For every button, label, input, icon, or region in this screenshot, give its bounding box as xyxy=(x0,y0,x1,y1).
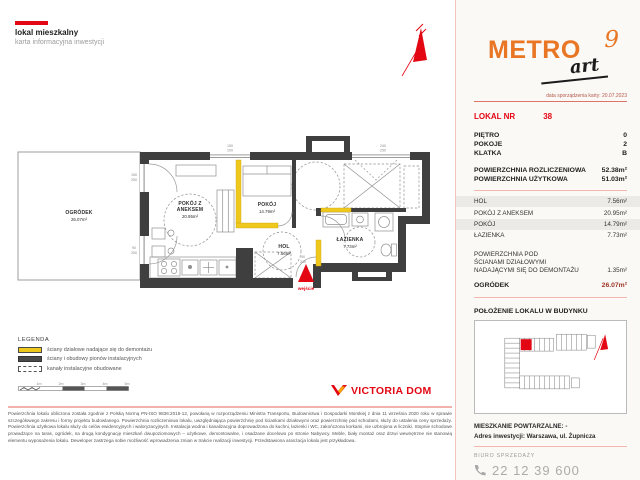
demountable-area-block: POWIERZCHNIA POD ŚCIANAMI DZIAŁOWYMI NAD… xyxy=(474,251,627,275)
info-value: 0 xyxy=(623,131,627,140)
area-value: 51.03m² xyxy=(602,175,627,184)
svg-text:100: 100 xyxy=(227,149,233,153)
demo-line-with-value: NADAJĄCYMI SIĘ DO DEMONTAŻU 1.35m² xyxy=(474,267,627,275)
card-main-area: lokal mieszkalny karta informacyjna inwe… xyxy=(0,0,455,480)
room-label: POKÓJ xyxy=(474,221,495,228)
card-date-note: data sporządzenia karty: 20.07.2023 xyxy=(474,93,627,102)
svg-text:90: 90 xyxy=(301,255,305,259)
info-value: B xyxy=(622,149,627,158)
scale-bar: 1m 2m 3m 4m 5m xyxy=(18,381,138,393)
svg-text:1m: 1m xyxy=(37,382,42,386)
svg-text:5m: 5m xyxy=(125,382,130,386)
unit-area-rows: POWIERZCHNIA ROZLICZENIOWA 52.38m² POWIE… xyxy=(474,166,627,184)
unit-number-row: LOKAL NR 38 xyxy=(474,112,627,121)
svg-text:90: 90 xyxy=(132,246,136,250)
dark-wall-swatch xyxy=(18,356,42,362)
garden-area-row: OGRÓDEK 26.07m² xyxy=(474,282,627,289)
table-row: POKÓJ 14.79m² xyxy=(456,219,640,230)
panel-divider xyxy=(474,190,627,191)
unit-number-value: 38 xyxy=(543,112,552,121)
room-value: 20.95m² xyxy=(604,210,627,217)
building-outline xyxy=(475,321,626,413)
svg-text:HOL: HOL xyxy=(278,244,289,250)
svg-text:250: 250 xyxy=(131,178,137,182)
table-row: ŁAZIENKA 7.73m² xyxy=(456,230,640,241)
panel-divider xyxy=(474,297,627,298)
svg-text:2m: 2m xyxy=(59,382,64,386)
svg-text:150: 150 xyxy=(131,173,137,177)
entrance-marker: wejście xyxy=(297,264,315,291)
diagram-north-arrow-icon xyxy=(594,334,608,360)
svg-text:240: 240 xyxy=(380,144,386,148)
victoria-dom-logo: VICTORIA DOM xyxy=(331,384,432,397)
svg-text:ŁAZIENKA: ŁAZIENKA xyxy=(337,237,364,243)
svg-text:14.79m²: 14.79m² xyxy=(259,209,276,214)
investment-address: Adres inwestycji: Warszawa, ul. Żupnicza xyxy=(474,433,627,440)
legend-item-label: kanały instalacyjne obudowane xyxy=(47,366,122,372)
svg-text:7.73m²: 7.73m² xyxy=(343,244,357,249)
info-row-rooms: POKOJE 2 xyxy=(474,140,627,149)
entrance-label: wejście xyxy=(297,286,315,291)
metro-art-logo: METRO 9 art xyxy=(474,36,627,88)
legend-item-label: ściany działowe nadające się do demontaż… xyxy=(47,347,152,353)
room-value: 14.79m² xyxy=(604,221,627,228)
svg-text:POKÓJ: POKÓJ xyxy=(258,200,277,208)
room-label: ŁAZIENKA xyxy=(474,232,504,239)
area-row-usable: POWIERZCHNIA UŻYTKOWA 51.03m² xyxy=(474,175,627,184)
room-label: HOL xyxy=(474,198,487,205)
legend: LEGENDA ściany działowe nadające się do … xyxy=(18,337,152,372)
info-panel: METRO 9 art data sporządzenia karty: 20.… xyxy=(455,0,640,480)
svg-text:250: 250 xyxy=(131,251,137,255)
room-value: 7.56m² xyxy=(607,198,627,205)
building-position-diagram xyxy=(474,320,627,414)
svg-text:7.56m²: 7.56m² xyxy=(277,251,291,256)
legend-item-shaft: ściany i obudowy pionów instalacyjnych xyxy=(18,356,152,362)
demo-line: NADAJĄCYMI SIĘ DO DEMONTAŻU xyxy=(474,267,579,275)
demo-line: ŚCIANAMI DZIAŁOWYMI xyxy=(474,259,627,267)
yellow-wall-swatch xyxy=(18,347,42,353)
dashed-duct-swatch xyxy=(18,366,42,372)
garden-label: OGRÓDEK xyxy=(474,282,509,289)
garden-value: 26.07m² xyxy=(602,282,627,289)
svg-text:4m: 4m xyxy=(103,382,108,386)
table-row: POKÓJ Z ANEKSEM 20.95m² xyxy=(456,207,640,218)
svg-text:20.95m²: 20.95m² xyxy=(182,214,199,219)
phone-row: 22 12 39 600 xyxy=(474,463,627,478)
info-label: KLATKA xyxy=(474,149,501,158)
svg-text:POKÓJ Z: POKÓJ Z xyxy=(178,199,201,207)
room-label: POKÓJ Z ANEKSEM xyxy=(474,210,533,217)
panel-divider xyxy=(474,446,627,447)
highlighted-unit xyxy=(521,339,532,350)
legend-item-demountable: ściany działowe nadające się do demontaż… xyxy=(18,347,152,353)
area-label: POWIERZCHNIA ROZLICZENIOWA xyxy=(474,166,586,175)
repeatable-unit-note: MIESZKANIE POWTARZALNE: - xyxy=(474,423,627,430)
footer-divider xyxy=(8,406,452,408)
area-row-billing: POWIERZCHNIA ROZLICZENIOWA 52.38m² xyxy=(474,166,627,175)
garden-area: OGRÓDEK 26.07m² xyxy=(18,152,140,280)
furniture-layer xyxy=(150,162,419,278)
unit-number-label: LOKAL NR xyxy=(474,112,515,121)
svg-text:210: 210 xyxy=(300,260,306,264)
demo-line: POWIERZCHNIA POD xyxy=(474,251,627,259)
metro-art-nine: 9 xyxy=(604,27,619,53)
legend-title: LEGENDA xyxy=(18,337,152,343)
room-area-table: HOL 7.56m² POKÓJ Z ANEKSEM 20.95m² POKÓJ… xyxy=(456,196,640,242)
svg-text:250: 250 xyxy=(380,149,386,153)
position-title: POŁOŻENIE LOKALU W BUDYNKU xyxy=(474,308,627,315)
garden-label: OGRÓDEK xyxy=(65,208,92,216)
room-value: 7.73m² xyxy=(607,232,627,239)
floor-plan: OGRÓDEK 26.07m² xyxy=(0,0,455,340)
legend-item-duct: kanały instalacyjne obudowane xyxy=(18,366,152,372)
victoria-dom-wordmark: VICTORIA DOM xyxy=(351,385,432,397)
legend-item-label: ściany i obudowy pionów instalacyjnych xyxy=(47,356,142,362)
info-row-floor: PIĘTRO 0 xyxy=(474,131,627,140)
sales-office-label: BIURO SPRZEDAŻY xyxy=(474,453,627,459)
table-row: HOL 7.56m² xyxy=(456,196,640,207)
unit-info-rows: PIĘTRO 0 POKOJE 2 KLATKA B xyxy=(474,131,627,158)
victoria-dom-check-icon xyxy=(331,384,347,397)
svg-text:3m: 3m xyxy=(81,382,86,386)
area-label: POWIERZCHNIA UŻYTKOWA xyxy=(474,175,568,184)
info-value: 2 xyxy=(623,140,627,149)
info-row-staircase: KLATKA B xyxy=(474,149,627,158)
area-value: 52.38m² xyxy=(602,166,627,175)
north-arrow-icon xyxy=(402,24,427,76)
info-label: POKOJE xyxy=(474,140,502,149)
legal-disclaimer: Powierzchnia lokalu obliczona została zg… xyxy=(8,411,452,453)
svg-text:ANEKSEM: ANEKSEM xyxy=(177,207,203,213)
phone-number: 22 12 39 600 xyxy=(492,463,580,478)
info-label: PIĘTRO xyxy=(474,131,499,140)
phone-icon xyxy=(474,464,486,476)
demo-value: 1.35m² xyxy=(607,267,627,275)
garden-area-value: 26.07m² xyxy=(71,217,88,222)
svg-text:150: 150 xyxy=(227,144,233,148)
